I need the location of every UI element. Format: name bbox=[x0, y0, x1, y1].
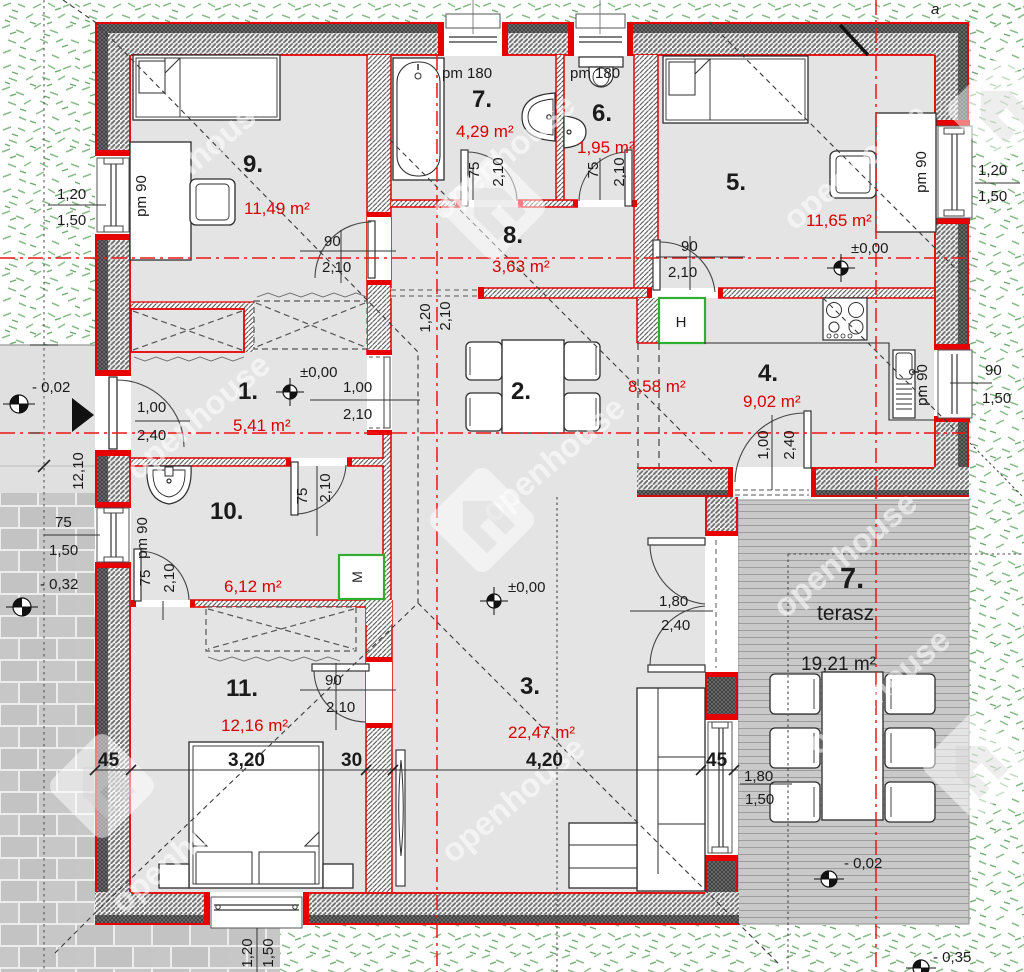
svg-text:- 0,35: - 0,35 bbox=[933, 949, 971, 966]
svg-text:75: 75 bbox=[466, 162, 483, 179]
svg-text:2,10: 2,10 bbox=[326, 699, 355, 716]
svg-text:7.: 7. bbox=[840, 563, 864, 595]
svg-text:90: 90 bbox=[325, 672, 342, 689]
svg-text:1,50: 1,50 bbox=[49, 542, 78, 559]
svg-text:8,58 m²: 8,58 m² bbox=[628, 377, 686, 396]
svg-text:2,10: 2,10 bbox=[490, 157, 507, 186]
svg-text:2,10: 2,10 bbox=[317, 473, 334, 502]
svg-text:1,95 m²: 1,95 m² bbox=[577, 138, 635, 157]
svg-text:90: 90 bbox=[985, 362, 1002, 379]
svg-text:pm 90: pm 90 bbox=[913, 151, 930, 193]
svg-text:12,16 m²: 12,16 m² bbox=[221, 716, 288, 735]
svg-text:3,20: 3,20 bbox=[228, 750, 265, 771]
svg-text:1,20: 1,20 bbox=[239, 938, 256, 967]
svg-text:pm 90: pm 90 bbox=[133, 175, 150, 217]
svg-text:1,50: 1,50 bbox=[57, 212, 86, 229]
svg-text:1,20: 1,20 bbox=[57, 186, 86, 203]
svg-text:5.: 5. bbox=[726, 169, 746, 196]
svg-text:H: H bbox=[676, 314, 687, 331]
svg-text:a: a bbox=[931, 1, 939, 18]
svg-text:75: 75 bbox=[294, 488, 311, 505]
svg-text:45: 45 bbox=[98, 750, 120, 771]
svg-text:75: 75 bbox=[585, 162, 602, 179]
svg-text:±0,00: ±0,00 bbox=[851, 240, 888, 257]
svg-text:2,40: 2,40 bbox=[661, 617, 690, 634]
svg-text:2.: 2. bbox=[511, 378, 531, 405]
svg-text:2,10: 2,10 bbox=[343, 406, 372, 423]
svg-text:1,20: 1,20 bbox=[417, 303, 434, 332]
svg-text:terasz: terasz bbox=[817, 602, 874, 625]
svg-text:- 0,32: - 0,32 bbox=[40, 576, 78, 593]
svg-text:19,21 m²: 19,21 m² bbox=[801, 654, 876, 675]
svg-text:pm 180: pm 180 bbox=[570, 65, 620, 82]
svg-text:6.: 6. bbox=[592, 100, 612, 127]
svg-text:9,02 m²: 9,02 m² bbox=[743, 392, 801, 411]
svg-text:7.: 7. bbox=[472, 86, 492, 113]
svg-text:22,47 m²: 22,47 m² bbox=[508, 723, 575, 742]
svg-text:45: 45 bbox=[706, 750, 728, 771]
svg-text:3,63 m²: 3,63 m² bbox=[492, 257, 550, 276]
svg-text:1,00: 1,00 bbox=[137, 399, 166, 416]
svg-text:- 0,02: - 0,02 bbox=[844, 855, 882, 872]
svg-text:- 0,02: - 0,02 bbox=[32, 379, 70, 396]
svg-text:1,80: 1,80 bbox=[659, 593, 688, 610]
svg-text:1.: 1. bbox=[238, 378, 258, 405]
svg-text:75: 75 bbox=[55, 514, 72, 531]
svg-text:4.: 4. bbox=[758, 360, 778, 387]
svg-text:1,50: 1,50 bbox=[978, 188, 1007, 205]
svg-text:90: 90 bbox=[324, 233, 341, 250]
svg-text:11,65 m²: 11,65 m² bbox=[806, 211, 872, 230]
svg-text:75: 75 bbox=[137, 570, 154, 587]
svg-text:2,10: 2,10 bbox=[161, 563, 178, 592]
svg-text:1,50: 1,50 bbox=[982, 390, 1011, 407]
svg-text:pm 180: pm 180 bbox=[442, 65, 492, 82]
svg-text:10.: 10. bbox=[210, 498, 243, 525]
svg-text:90: 90 bbox=[681, 238, 698, 255]
svg-text:2,10: 2,10 bbox=[668, 264, 697, 281]
svg-text:2,40: 2,40 bbox=[137, 427, 166, 444]
svg-text:11,49 m²: 11,49 m² bbox=[244, 199, 310, 218]
svg-text:30: 30 bbox=[341, 750, 362, 771]
svg-text:9.: 9. bbox=[243, 151, 263, 178]
svg-text:1,00: 1,00 bbox=[343, 379, 372, 396]
svg-text:2,10: 2,10 bbox=[611, 157, 628, 186]
svg-text:2,10: 2,10 bbox=[437, 301, 454, 330]
svg-text:12,10: 12,10 bbox=[70, 452, 87, 490]
svg-text:±0,00: ±0,00 bbox=[300, 364, 337, 381]
svg-text:6,12 m²: 6,12 m² bbox=[224, 577, 282, 596]
svg-text:2,10: 2,10 bbox=[322, 259, 351, 276]
svg-text:±0,00: ±0,00 bbox=[508, 579, 545, 596]
svg-text:2,40: 2,40 bbox=[781, 430, 798, 459]
svg-text:8.: 8. bbox=[503, 222, 523, 249]
svg-text:4,20: 4,20 bbox=[526, 750, 563, 771]
svg-text:4,29 m²: 4,29 m² bbox=[456, 122, 514, 141]
svg-text:M: M bbox=[349, 571, 365, 583]
svg-text:1,20: 1,20 bbox=[978, 162, 1007, 179]
svg-text:pm 90: pm 90 bbox=[134, 517, 151, 559]
svg-text:11.: 11. bbox=[226, 675, 258, 702]
svg-text:1,00: 1,00 bbox=[755, 430, 772, 459]
svg-text:1,80: 1,80 bbox=[744, 768, 773, 785]
svg-text:pm 90: pm 90 bbox=[914, 364, 931, 406]
svg-text:3.: 3. bbox=[520, 673, 540, 700]
svg-text:1,50: 1,50 bbox=[260, 938, 277, 967]
svg-text:1,50: 1,50 bbox=[745, 791, 774, 808]
svg-text:5,41 m²: 5,41 m² bbox=[233, 416, 291, 435]
